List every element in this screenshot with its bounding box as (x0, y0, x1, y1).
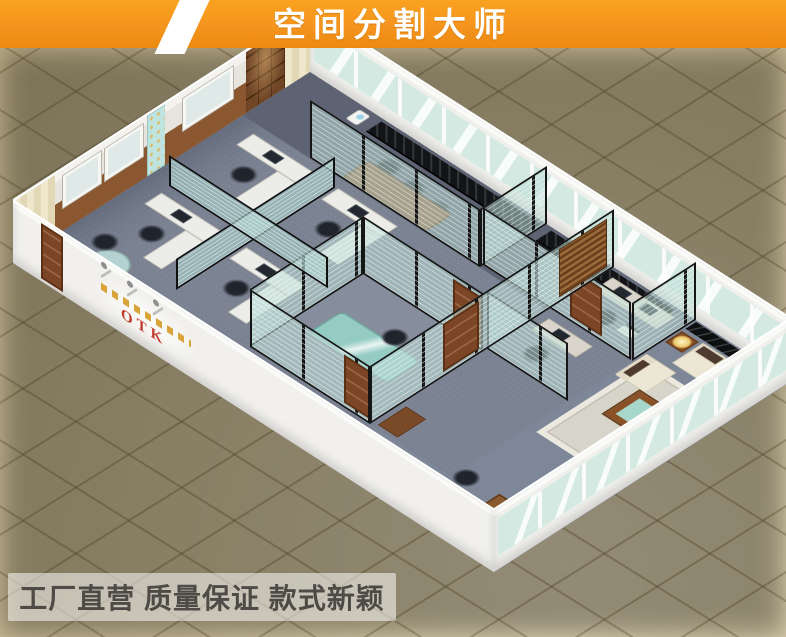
promo-image: 空间分割大师 (0, 0, 786, 637)
banner: 空间分割大师 (0, 0, 786, 48)
banner-title: 空间分割大师 (0, 0, 786, 48)
caption-bar: 工厂直营 质量保证 款式新颖 (8, 573, 396, 621)
office-chair (135, 223, 169, 245)
office-chair (219, 277, 253, 299)
entry-door (41, 223, 63, 292)
office-chair (227, 164, 261, 186)
caption-text: 工厂直营 质量保证 款式新颖 (19, 577, 385, 617)
office-render-scene: OTK 工厂直营 质量保证 款式新颖 (0, 48, 786, 637)
water-bottle (355, 113, 366, 120)
spotlight-head (101, 261, 107, 271)
